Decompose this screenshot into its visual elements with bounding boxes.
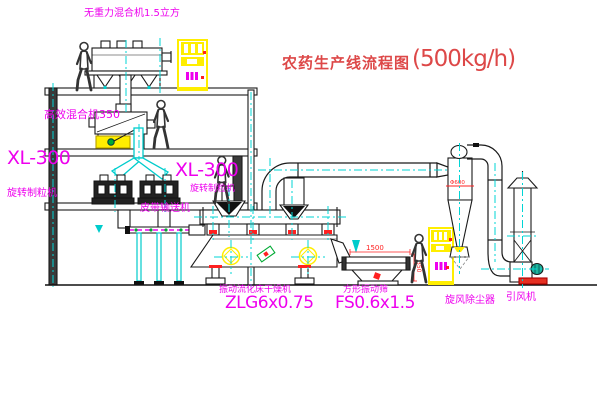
rotary-granulators [92, 175, 180, 204]
bucket-elevator-2 [429, 228, 453, 284]
worker-figure-1 [77, 43, 91, 91]
high-efficiency-mixer [89, 104, 155, 149]
fan-base [519, 278, 547, 284]
dim-screen-length: 1500 [366, 244, 384, 252]
induced-draft-fan [510, 262, 547, 284]
dim-cyclone-diameter: Φ600 [450, 180, 465, 186]
belt-conveyor [95, 225, 200, 285]
downcomer-duct [467, 143, 514, 276]
flow-arrow [95, 225, 103, 233]
diagram-drawing: 1500 350 Φ600 [0, 0, 600, 403]
vibrating-screen: 1500 350 [342, 240, 422, 285]
discharge-chutes [118, 210, 170, 228]
pesticide-production-line-diagram: 1500 350 Φ600 [0, 0, 600, 403]
screen-arrow [352, 240, 360, 253]
bucket-elevator-1 [178, 40, 207, 90]
worker-figure-2 [154, 101, 168, 149]
